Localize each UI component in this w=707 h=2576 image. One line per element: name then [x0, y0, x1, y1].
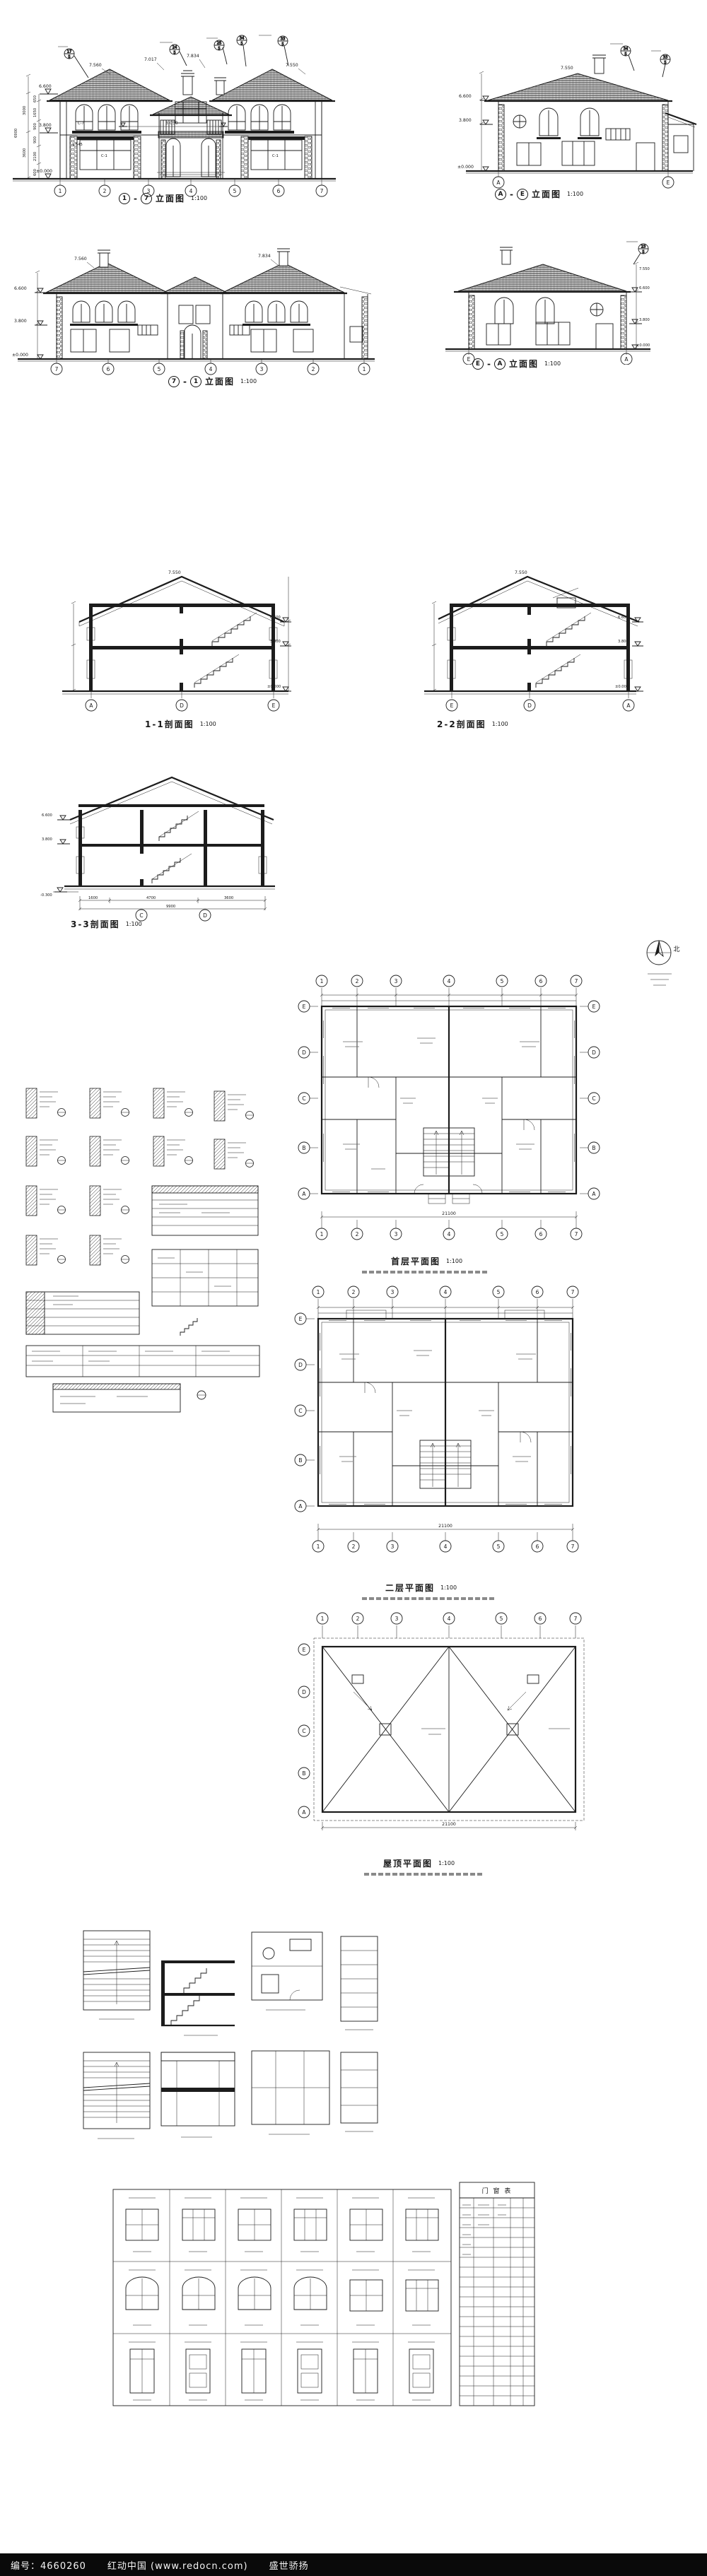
- axis-bubbles: 7 6 5 4 3 2 1: [51, 359, 370, 375]
- axis-bubble: A: [494, 358, 506, 370]
- level-label: 7.550: [639, 267, 650, 271]
- axis-bubble-label: B: [302, 1145, 305, 1151]
- axis-bubble: E: [472, 358, 484, 370]
- axis-bubble-label: D: [298, 1362, 303, 1368]
- dim-label: 9900: [166, 905, 175, 909]
- axis-bubble-label: C: [592, 1095, 595, 1102]
- axis-bubble-label: B: [302, 1770, 305, 1777]
- axis-bubble-label: 4: [444, 1543, 448, 1550]
- section-1-1-drawing: 6.600 3.800 ±0.000 7.550 A D E: [42, 548, 298, 718]
- axis-bubble-label: D: [302, 1049, 306, 1056]
- detail-block: [152, 1186, 258, 1235]
- axis-bubble-label: 3: [395, 1231, 398, 1237]
- stair-section-detail: [161, 1960, 235, 2035]
- level-label: 7.550: [286, 63, 298, 68]
- level-label: -0.300: [40, 893, 52, 898]
- stairs: [152, 811, 199, 883]
- watermark-bar: 编号：4660260 红动中国 (www.redocn.com) 盛世骄扬: [0, 2553, 707, 2576]
- axis-bubble-label: 7: [55, 366, 59, 372]
- plan-note-marks: [364, 1873, 484, 1876]
- dim-label: 3000: [23, 106, 27, 115]
- axis-bubble-label: 4: [209, 366, 213, 372]
- axis-bubble-label: 7: [571, 1543, 575, 1550]
- chimney: [500, 247, 513, 264]
- caption-section-2-2: 2-2剖面图 1:100: [437, 718, 508, 730]
- axis-bubble-label: 6: [539, 1616, 542, 1622]
- room-detail: [252, 2051, 329, 2134]
- level-label: 7.560: [89, 63, 102, 68]
- axis-bubble: 1: [119, 193, 130, 204]
- room-label-marks: [343, 1038, 539, 1169]
- upper-windows: [72, 102, 294, 134]
- level-label: 6.600: [42, 813, 52, 818]
- axis-bubble-label: A: [302, 1809, 306, 1816]
- axis-bubble-label: A: [89, 702, 93, 709]
- level-label: 7.834: [258, 254, 271, 259]
- level-label: 6.600: [14, 286, 27, 291]
- axis-bubble-label: A: [298, 1503, 303, 1510]
- axis-bubble-label: D: [527, 702, 532, 709]
- level-label: 3.800: [639, 318, 650, 322]
- axis-bubble-label: 3: [391, 1543, 395, 1550]
- structure: [70, 777, 274, 886]
- axis-bubble-label: A: [496, 180, 501, 186]
- dimension-chain: 650 1650 900 900 2100 600 3000 3600 6900: [14, 74, 41, 179]
- stair-details: [78, 1925, 383, 2161]
- axis-bubble-label: E: [592, 1004, 596, 1010]
- caption-title: 立面图: [205, 375, 235, 387]
- axis-bubble-label: B: [592, 1145, 595, 1151]
- level-label: 3.800: [39, 123, 52, 128]
- section-1-1: 6.600 3.800 ±0.000 7.550 A D E: [42, 548, 298, 718]
- axis-bubble-label: 7: [575, 978, 578, 984]
- dim-label: 2100: [33, 152, 37, 161]
- axis-bubbles-left: E D C B A: [298, 1644, 310, 1818]
- roof-plan-drawing: 1 2 3 4 5 6 7 E D C B A 21100: [283, 1607, 608, 1847]
- detail-ref-label: 5: [218, 47, 220, 51]
- detail-ref-label: 34: [624, 47, 629, 52]
- axis-bubble: 1: [190, 376, 201, 387]
- axis-bubbles: A E: [493, 171, 674, 188]
- drawing-sheet: 650 1650 900 900 2100 600 3000 3600 6900…: [0, 0, 707, 2576]
- second-floor-plan-drawing: 1 2 3 4 5 6 7 E D C B A 21100 1 2 3 4 5 …: [276, 1281, 615, 1577]
- caption-scale: 1:100: [492, 721, 508, 727]
- detail-block: [53, 1384, 206, 1412]
- axis-bubble-label: E: [450, 702, 454, 709]
- level-label: 6.600: [270, 616, 281, 620]
- second-floor-plan: 1 2 3 4 5 6 7 E D C B A 21100 1 2 3 4 5 …: [276, 1281, 615, 1577]
- axis-bubbles: C D: [136, 910, 211, 921]
- caption-separator: -: [134, 194, 137, 204]
- level-label: 3.800: [270, 640, 281, 644]
- schedule-grid: [113, 2189, 451, 2406]
- level-label: 7.017: [144, 57, 157, 62]
- dim-label: 900: [33, 123, 37, 130]
- levels: -0.300 6.600 3.800: [40, 813, 78, 898]
- detail-ref-label: 23: [641, 245, 646, 249]
- caption-side-elevation-ae: A - E 立面图 1:100: [495, 188, 583, 200]
- axis-bubble-label: 1: [317, 1289, 320, 1295]
- detail-cluster-drawing: [25, 1087, 274, 1422]
- level-label: 3.050: [165, 121, 178, 126]
- level-label: 7.550: [515, 570, 527, 575]
- body: [57, 293, 368, 359]
- axis-bubbles-bottom: 1 2 3 4 5 6 7: [316, 1220, 582, 1240]
- stairs: [536, 613, 591, 688]
- caption-scale: 1:100: [446, 1258, 462, 1264]
- axis-bubble-label: 3: [395, 1616, 399, 1622]
- level-label: 3.800: [618, 640, 629, 644]
- windows: [70, 301, 363, 359]
- axis-bubble-label: 6: [539, 1231, 543, 1237]
- level-label: ±0.000: [636, 343, 650, 348]
- north-label: 北: [673, 946, 681, 953]
- axis-bubble-label: E: [303, 1647, 306, 1653]
- axis-bubble-label: 1: [317, 1543, 320, 1550]
- detail-ref-label: 25: [217, 42, 222, 46]
- axis-bubble-label: D: [203, 912, 207, 919]
- caption-scale: 1:100: [200, 721, 216, 727]
- axis-bubble-label: A: [302, 1191, 306, 1197]
- caption-title: 1-1剖面图: [145, 718, 194, 730]
- axis-bubble-label: 6: [277, 188, 281, 194]
- caption-front-elevation: 1 - 7 立面图 1:100: [119, 192, 207, 204]
- caption-roof-plan: 屋顶平面图 1:100: [383, 1857, 455, 1869]
- caption-first-floor-plan: 首层平面图 1:100: [391, 1255, 462, 1267]
- caption-scale: 1:100: [544, 360, 561, 367]
- axis-bubble-label: D: [180, 702, 184, 709]
- axis-bubble-label: 1: [363, 366, 366, 372]
- caption-section-1-1: 1-1剖面图 1:100: [145, 718, 216, 730]
- axis-bubble-label: C: [302, 1095, 305, 1102]
- stairs: [423, 1128, 474, 1176]
- axis-bubble-label: E: [272, 702, 276, 709]
- caption-title: 3-3剖面图: [71, 918, 120, 930]
- axis-bubble-label: 6: [539, 978, 543, 984]
- axis-bubble-label: 5: [497, 1543, 501, 1550]
- back-elevation-drawing: 6.600 3.800 ±0.000 7.560 7.834 7 6 5 4 3…: [11, 235, 382, 376]
- axis-bubbles-top: 1 2 3 4 5 6 7: [312, 1286, 578, 1319]
- door-window-schedule-drawing: 门 窗 表: [112, 2181, 537, 2416]
- axis-bubbles-bottom: 1 2 3 4 5 6 7: [312, 1532, 578, 1552]
- dim-chain: [71, 601, 76, 691]
- side-elevation-ea: 7.550 6.600 3.800 ±0.000 23 5 E A: [437, 239, 658, 365]
- axis-bubble-label: 7: [320, 188, 324, 194]
- axis-bubble-label: 1: [321, 1616, 325, 1622]
- detail-ref-label: 5: [68, 55, 70, 59]
- porches: [428, 1194, 469, 1204]
- watermark-brand: 盛世骄扬: [269, 2558, 309, 2572]
- first-floor-plan: 1 2 3 4 5 6 7 E D C B A E D C B A 21100 …: [283, 971, 615, 1252]
- level-label: ±0.000: [457, 165, 474, 170]
- caption-separator: -: [183, 377, 187, 387]
- entrance: [157, 131, 225, 179]
- detail-bubbles: 34 5 33 5: [610, 44, 670, 77]
- axis-bubble-label: 2: [356, 978, 359, 984]
- axis-bubbles-top: 1 2 3 4 5 6 7: [317, 1613, 581, 1638]
- room-label-marks: [339, 1351, 536, 1462]
- level-label: 6.600: [639, 286, 650, 290]
- level-label: 6.600: [459, 94, 472, 99]
- axis-bubble-label: 3: [391, 1289, 395, 1295]
- stair-plan-detail: [83, 1931, 150, 2019]
- roofs: [43, 263, 371, 294]
- back-elevation: 6.600 3.800 ±0.000 7.560 7.834 7 6 5 4 3…: [11, 235, 382, 376]
- axis-bubble-label: A: [626, 702, 631, 709]
- caption-title: 二层平面图: [385, 1582, 435, 1594]
- level-label: 7.560: [74, 257, 87, 261]
- axis-bubble-label: 2: [356, 1616, 360, 1622]
- axis-bubble-label: B: [298, 1457, 302, 1464]
- watermark-site: 红动中国 (www.redocn.com): [107, 2558, 248, 2572]
- stone-quoin: [315, 101, 322, 179]
- axis-bubble-label: C: [298, 1408, 302, 1414]
- axis-bubble-label: 5: [158, 366, 161, 372]
- axis-bubble-label: 1: [320, 978, 324, 984]
- side-elevation-ae-drawing: 6.600 3.800 ±0.000 7.550 34 5 33 5 A E: [456, 40, 700, 191]
- level-label: 7.550: [561, 66, 573, 71]
- structure: [438, 577, 639, 691]
- roof-label-marks: [421, 1729, 570, 1734]
- level-label: ±0.000: [615, 685, 629, 689]
- axis-bubble-label: E: [299, 1316, 303, 1322]
- axis-bubble: A: [495, 189, 506, 200]
- caption-title: 屋顶平面图: [383, 1857, 433, 1869]
- caption-scale: 1:100: [191, 195, 207, 201]
- dim-label: 4700: [146, 896, 156, 900]
- windows: [486, 298, 613, 349]
- level-label: ±0.000: [36, 169, 52, 174]
- body: [498, 101, 696, 171]
- level-label: 3.800: [459, 118, 472, 123]
- dim-label: 6900: [14, 129, 18, 138]
- levels: 7.550 6.600 3.800 ±0.000: [629, 262, 650, 349]
- axis-bubble-label: 5: [501, 978, 504, 984]
- detail-block: [152, 1249, 258, 1306]
- axis-bubbles-top: 1 2 3 4 5 6 7: [316, 975, 582, 1006]
- detail-block: [26, 1292, 139, 1334]
- detail-bubbles: 17 5 24 5 25 5 34 5 33 5: [58, 35, 288, 78]
- detail-block: [26, 1346, 259, 1377]
- caption-title: 2-2剖面图: [437, 718, 486, 730]
- axis-bubble-label: 4: [448, 1616, 451, 1622]
- levels: 6.600 3.800 ±0.000 7.560 7.834: [12, 254, 278, 359]
- side-elevation-ea-drawing: 7.550 6.600 3.800 ±0.000 23 5 E A: [437, 239, 658, 365]
- level-marks: [40, 89, 58, 179]
- axis-bubble-label: E: [467, 356, 471, 363]
- bottom-dims: 21100: [321, 1822, 577, 1830]
- door-window-schedule: 门 窗 表: [112, 2181, 537, 2416]
- detail-ref-label: 5: [173, 51, 175, 55]
- dim-label: 1650: [33, 108, 37, 117]
- axis-bubble-label: 2: [103, 188, 107, 194]
- dim-label: 3600: [224, 896, 233, 900]
- window-type-label: C-7: [78, 122, 84, 126]
- bathroom-detail: [252, 1932, 322, 2010]
- roof-outline: [314, 1638, 584, 1821]
- dim-label: 650: [33, 95, 37, 102]
- axis-bubbles-left: E D C B A: [295, 1313, 315, 1512]
- axis-bubble-label: 1: [320, 1231, 324, 1237]
- caption-title: 立面图: [156, 192, 185, 204]
- section-2-2-drawing: 6.600 3.800 ±0.000 7.550 E D A: [409, 548, 643, 718]
- axis-bubble-label: 2: [312, 366, 315, 372]
- stairs: [420, 1440, 471, 1488]
- north-need1e: [655, 941, 659, 956]
- axis-bubble-label: E: [303, 1004, 306, 1010]
- bottom-dims: 21100: [317, 1524, 574, 1532]
- section-3-3-drawing: -0.300 6.600 3.800 1600 4700 3600 9900 C…: [39, 751, 288, 922]
- axis-bubble-label: E: [667, 180, 670, 186]
- axis-bubble-label: 5: [233, 188, 237, 194]
- dim-chain: [432, 601, 436, 691]
- axis-bubble-label: D: [302, 1689, 306, 1695]
- axis-bubble-label: 7: [574, 1616, 578, 1622]
- detail-ref-label: 5: [281, 42, 284, 47]
- section-2-2: 6.600 3.800 ±0.000 7.550 E D A: [409, 548, 643, 718]
- level-label: 3.800: [42, 837, 52, 842]
- detail-ref-label: 5: [240, 42, 243, 46]
- detail-cluster: [25, 1087, 274, 1422]
- bottom-dims: 1600 4700 3600 9900: [78, 896, 267, 910]
- detail-ref-label: 33: [281, 37, 286, 42]
- axis-bubble-label: 6: [107, 366, 110, 372]
- axis-bubble-label: 4: [444, 1289, 448, 1295]
- front-elevation: 650 1650 900 900 2100 600 3000 3600 6900…: [7, 34, 339, 199]
- axis-bubble-label: 7: [575, 1231, 578, 1237]
- axis-bubble-label: 3: [260, 366, 264, 372]
- axis-bubble-label: 5: [500, 1616, 503, 1622]
- axis-bubble-label: 6: [536, 1289, 539, 1295]
- detail-ref-label: 5: [664, 61, 666, 65]
- detail-ref-label: 5: [624, 52, 626, 57]
- caption-scale: 1:100: [440, 1584, 457, 1591]
- axis-bubbles-left: E D C B A: [298, 1001, 318, 1199]
- schedule-table: 门 窗 表: [460, 2182, 534, 2406]
- detail-ref-label: 24: [173, 46, 177, 50]
- stair-glyph: [180, 1318, 197, 1336]
- stair-plan-detail: [83, 2052, 150, 2139]
- windows: [513, 108, 688, 171]
- axis-bubble-label: 2: [352, 1289, 356, 1295]
- level-label: 7.550: [168, 570, 181, 575]
- window-type-label: C-1: [272, 154, 279, 158]
- chimney: [592, 55, 606, 73]
- dim-label: 21100: [442, 1822, 456, 1827]
- caption-title: 首层平面图: [391, 1255, 440, 1267]
- detail-ref-label: 34: [240, 37, 245, 41]
- compass: 北: [636, 934, 686, 994]
- stone-quoin: [60, 101, 66, 179]
- caption-title: 立面图: [509, 358, 539, 370]
- caption-scale: 1:100: [240, 378, 257, 384]
- axis-bubble: 7: [141, 193, 152, 204]
- level-label: ±0.000: [267, 685, 281, 689]
- axis-bubble-label: 1: [59, 188, 62, 194]
- caption-scale: 1:100: [126, 921, 142, 927]
- level-label: 1.545: [72, 143, 83, 147]
- axis-bubble-label: 6: [536, 1543, 539, 1550]
- detail-ref-label: 17: [67, 50, 72, 54]
- plan-note-marks: [362, 1597, 496, 1600]
- caption-separator: -: [510, 189, 513, 199]
- structure: [79, 577, 284, 691]
- side-elevation-ae: 6.600 3.800 ±0.000 7.550 34 5 33 5 A E: [456, 40, 700, 191]
- caption-title: 立面图: [532, 188, 561, 200]
- axis-bubbles-right: E D C B A: [580, 1001, 600, 1199]
- axis-bubble-label: C: [302, 1728, 305, 1734]
- level-label: ±0.000: [12, 353, 28, 358]
- caption-back-elevation: 7 - 1 立面图 1:100: [168, 375, 257, 387]
- section-3-3: -0.300 6.600 3.800 1600 4700 3600 9900 C…: [39, 751, 288, 922]
- detail-bubbles: 23 5: [626, 242, 648, 264]
- axis-bubble: E: [517, 189, 528, 200]
- dim-label: 21100: [438, 1524, 452, 1529]
- detail-ref-label: 33: [663, 56, 668, 60]
- level-label: 7.834: [187, 54, 199, 59]
- level-label: 6.600: [618, 616, 629, 620]
- stairs: [194, 613, 257, 688]
- compass-drawing: 北: [636, 934, 686, 994]
- level-label: 3.800: [14, 319, 27, 324]
- axis-bubble-label: A: [592, 1191, 596, 1197]
- axis-bubble-label: 2: [356, 1231, 359, 1237]
- detail-ref-label: 5: [642, 250, 644, 254]
- axis-bubble-label: D: [592, 1049, 596, 1056]
- front-elevation-drawing: 650 1650 900 900 2100 600 3000 3600 6900…: [7, 34, 339, 199]
- roof: [488, 73, 668, 100]
- watermark-code: 编号：4660260: [11, 2558, 86, 2572]
- plan-note-marks: [362, 1271, 489, 1274]
- schedule-title: 门 窗 表: [482, 2187, 513, 2195]
- caption-separator: -: [487, 359, 491, 369]
- first-floor-plan-drawing: 1 2 3 4 5 6 7 E D C B A E D C B A 21100 …: [283, 971, 615, 1252]
- axis-bubble: 7: [168, 376, 180, 387]
- axis-bubble-label: 4: [448, 1231, 451, 1237]
- chimneys: [181, 71, 226, 95]
- axis-bubble-label: 5: [497, 1289, 501, 1295]
- dim-label: 1600: [88, 896, 98, 900]
- axis-bubble-label: 4: [448, 978, 451, 984]
- body: [469, 292, 626, 349]
- dim-label: 900: [33, 136, 37, 143]
- axis-bubble-label: 2: [352, 1543, 356, 1550]
- axis-bubble-label: 5: [501, 1231, 504, 1237]
- caption-scale: 1:100: [438, 1860, 455, 1866]
- narrow-detail: [341, 1936, 378, 2131]
- dim-label: 21100: [442, 1211, 456, 1216]
- bottom-dims: 21100: [320, 1211, 578, 1220]
- axis-bubble-label: A: [624, 356, 629, 363]
- roof-plan: 1 2 3 4 5 6 7 E D C B A 21100: [283, 1607, 608, 1847]
- caption-section-3-3: 3-3剖面图 1:100: [71, 918, 142, 930]
- level-label: 6.600: [39, 84, 52, 89]
- wall-section-detail: [161, 2052, 235, 2137]
- axis-bubble-label: 7: [571, 1289, 575, 1295]
- window-type-label: C-1: [101, 154, 107, 158]
- roof: [458, 264, 626, 291]
- caption-side-elevation-ea: E - A 立面图 1:100: [472, 358, 561, 370]
- axis-bubble-label: 3: [395, 978, 398, 984]
- caption-scale: 1:100: [567, 191, 583, 197]
- levels: 6.600 3.800 ±0.000 7.550: [515, 570, 643, 691]
- stair-details-drawing: [78, 1925, 383, 2161]
- dim-label: 3600: [23, 148, 27, 158]
- caption-second-floor-plan: 二层平面图 1:100: [385, 1582, 457, 1594]
